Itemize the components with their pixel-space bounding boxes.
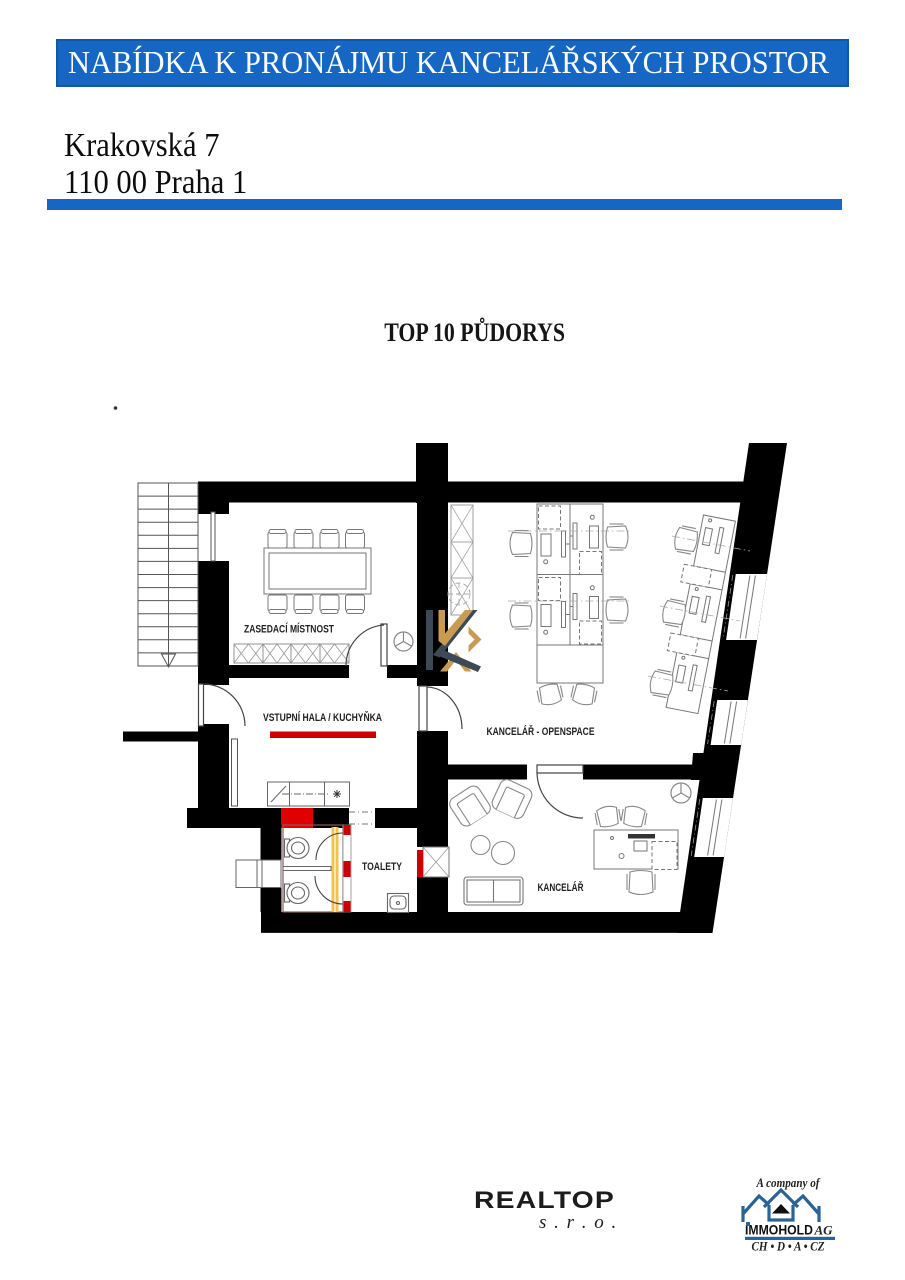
svg-text:KANCELÁŘ: KANCELÁŘ [538,881,584,894]
svg-text:VSTUPNÍ HALA / KUCHYŇKA: VSTUPNÍ HALA / KUCHYŇKA [263,711,382,724]
svg-text:AG: AG [814,1223,834,1238]
svg-text:TOALETY: TOALETY [362,861,403,873]
svg-text:IMMOHOLD: IMMOHOLD [745,1222,813,1238]
svg-text:ZASEDACÍ MÍSTNOST: ZASEDACÍ MÍSTNOST [244,623,334,636]
svg-text:KANCELÁŘ - OPENSPACE: KANCELÁŘ - OPENSPACE [487,725,595,738]
svg-text:CH • D • A • CZ: CH • D • A • CZ [752,1240,825,1254]
svg-text:A company of: A company of [756,1176,822,1190]
